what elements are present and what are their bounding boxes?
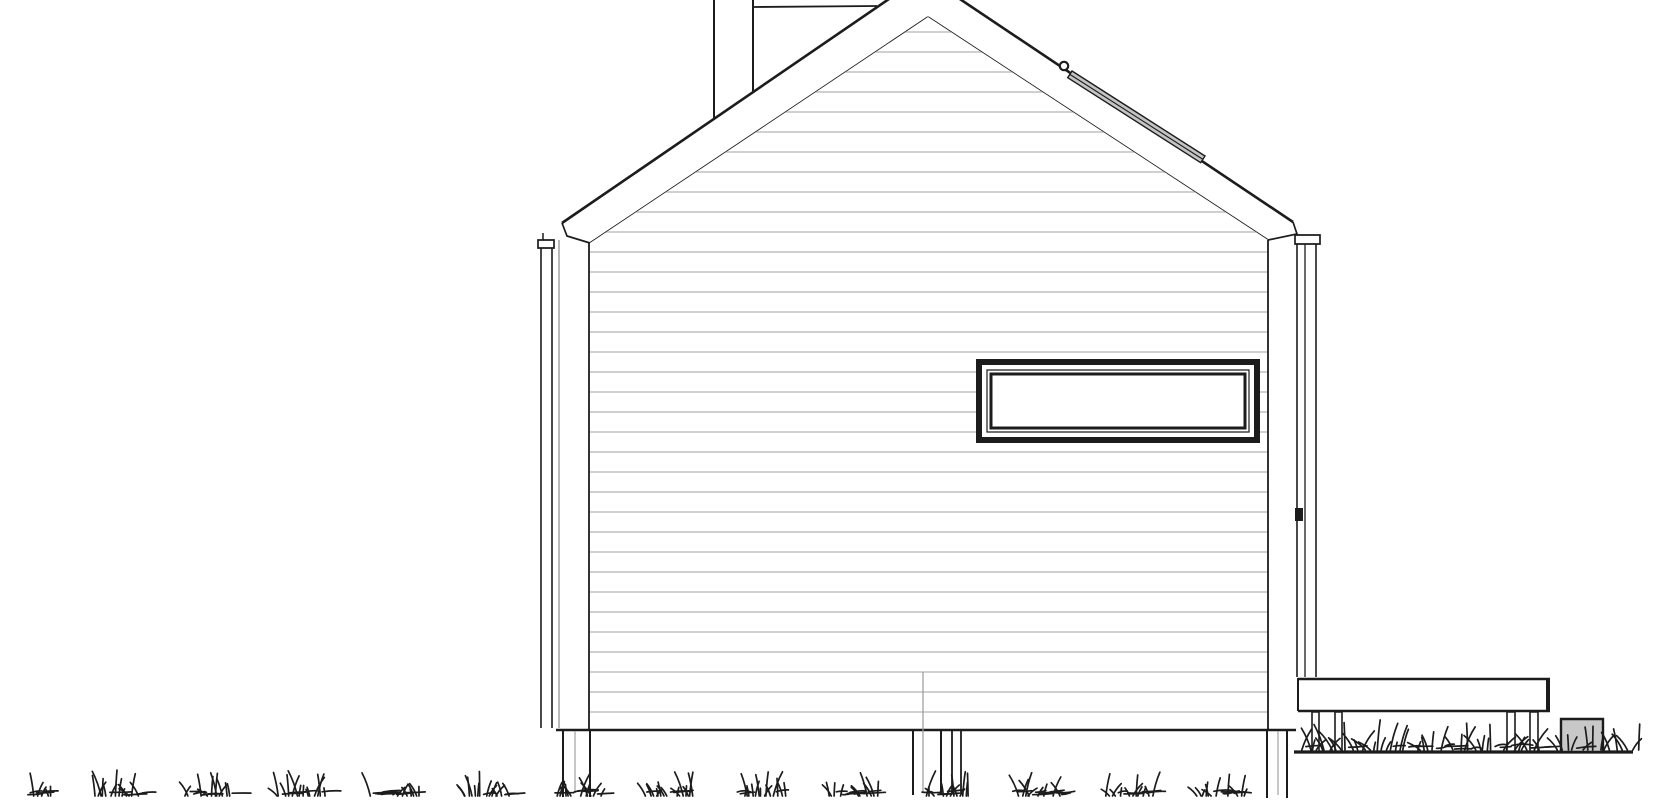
grass-bottom-strip xyxy=(834,783,835,796)
grass-bottom-strip xyxy=(777,778,778,796)
grass-under-deck xyxy=(1461,734,1462,750)
grass-under-deck xyxy=(1507,742,1508,750)
window xyxy=(979,362,1257,440)
grass-bottom-strip xyxy=(968,773,969,796)
grass-under-deck xyxy=(1490,725,1491,751)
grass-bottom-strip xyxy=(303,786,304,797)
downspout-bracket xyxy=(1295,508,1303,521)
elevation-canvas xyxy=(0,0,1670,800)
chimney-cap-line xyxy=(753,6,877,7)
elevation-drawing xyxy=(0,0,1670,800)
grass-bottom-strip xyxy=(475,786,476,796)
grass-bottom-strip xyxy=(478,783,479,796)
grass-bottom-strip xyxy=(598,793,614,794)
grass-right-of-deck xyxy=(1639,724,1640,750)
grass-bottom-strip xyxy=(878,781,879,796)
grass-under-deck xyxy=(1467,723,1468,750)
grass-bottom-strip xyxy=(1121,788,1122,796)
grass-bottom-strip xyxy=(142,792,155,793)
roof-strip-knob xyxy=(1060,62,1068,70)
deck-band xyxy=(1298,678,1550,712)
grass-right-of-deck xyxy=(1568,735,1569,750)
grass-under-deck xyxy=(1544,746,1560,747)
grass-bottom-strip xyxy=(102,779,103,796)
